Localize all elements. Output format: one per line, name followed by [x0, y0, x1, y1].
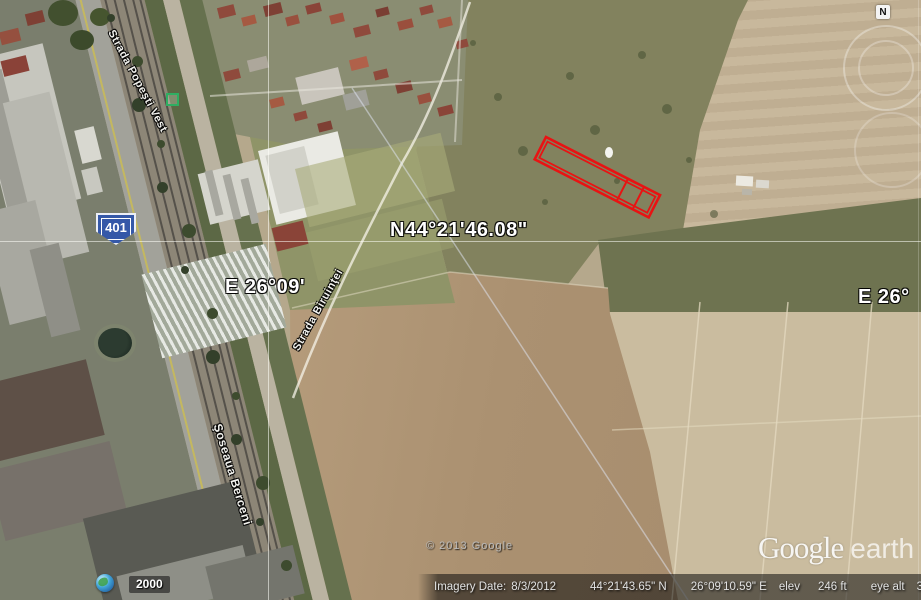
status-longitude: 26°09'10.59" E — [691, 581, 767, 593]
globe-icon — [96, 574, 114, 592]
map-viewport[interactable]: N44°21'46.08" E 26°09' E 26° Strada Pope… — [0, 0, 921, 600]
scale-legend: 2000 — [129, 576, 170, 593]
copyright-text: © 2013 Google — [426, 540, 513, 552]
elev-value: 246 ft — [818, 581, 847, 593]
route-badge-label: 401 — [105, 220, 127, 243]
move-ring[interactable] — [854, 112, 921, 188]
eye-alt-label: eye alt — [871, 581, 905, 593]
imagery-date-value: 8/3/2012 — [511, 581, 556, 593]
longitude-label-left: E 26°09' — [225, 276, 305, 299]
logo-earth: earth — [850, 533, 914, 564]
look-ring-inner[interactable] — [858, 40, 914, 96]
north-button[interactable]: N — [876, 5, 890, 19]
status-bar: Imagery Date: 8/3/2012 44°21'43.65" N 26… — [418, 574, 921, 600]
latitude-label: N44°21'46.08" — [390, 219, 528, 242]
eye-alt-value: 3431 ft — [917, 581, 921, 593]
gridline-longitude — [268, 0, 269, 600]
elev-label: elev — [779, 581, 800, 593]
status-latitude: 44°21'43.65" N — [590, 581, 667, 593]
parcel-outline — [535, 137, 660, 217]
logo-google: Google — [758, 530, 843, 565]
imagery-date-label: Imagery Date: — [434, 581, 506, 593]
longitude-label-right: E 26° — [858, 286, 910, 309]
google-earth-logo: Googleearth — [758, 530, 914, 566]
